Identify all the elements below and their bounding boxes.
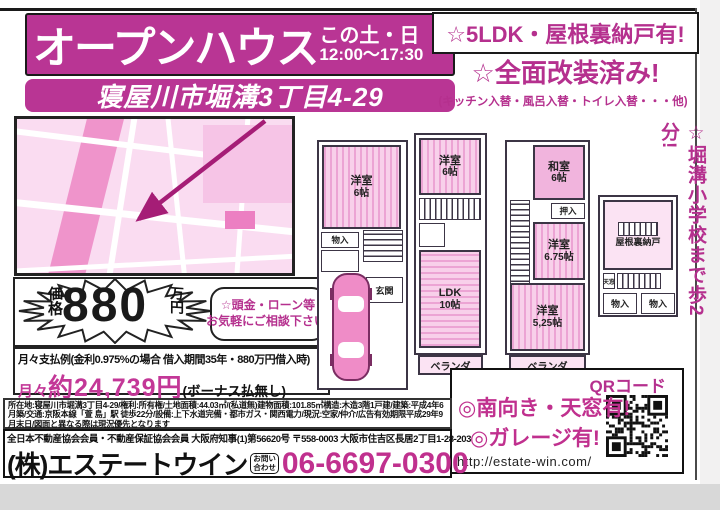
promo-garage: ◎ガレージ有!: [470, 422, 600, 452]
promo-qr-box: QRコード ◎南向き・天窓有! ◎ガレージ有! http://estate-wi…: [450, 368, 684, 474]
map-block: [203, 125, 295, 203]
closet-label: 物入: [641, 293, 675, 314]
feature-5ldk: ☆5LDK・屋根裏納戸有!: [432, 12, 699, 54]
website-url: http://estate-win.com/: [457, 454, 592, 469]
price-unit: 万円: [168, 285, 184, 314]
openhouse-banner: オープンハウス この土・日 12:00〜17:30: [25, 13, 455, 76]
closet-label: 物入: [603, 293, 637, 314]
room-west-6: 洋室 6帖: [322, 145, 401, 229]
license-line: 全日本不動産協会会員・不動産保証協会会員 大阪府知事(1)第56620号 〒55…: [7, 431, 448, 445]
phone-number: 06-6697-0300: [282, 447, 469, 481]
car-icon: [329, 270, 373, 384]
floorplan-attic: 屋根裏納戸 天窓 物入 物入: [598, 195, 678, 317]
toilet-unit: [419, 223, 445, 247]
flyer-page: オープンハウス この土・日 12:00〜17:30 寝屋川市堀溝3丁目4-29 …: [0, 0, 720, 510]
room-japanese-6: 和室 6帖: [533, 145, 585, 200]
price-amount: 880: [62, 278, 148, 333]
map-road: [164, 116, 192, 276]
payment-box: 月々支払例(金利0.975%の場合 借入期間35年・880万円借入時) 月々 約…: [13, 347, 330, 395]
openhouse-schedule: この土・日 12:00〜17:30: [319, 26, 423, 63]
map-block: [225, 211, 255, 229]
stairs-icon: [363, 230, 403, 262]
skylight-label: 天窓: [603, 273, 615, 289]
company-box: 全日本不動産協会会員・不動産保証協会会員 大阪府知事(1)第56620号 〒55…: [3, 429, 452, 478]
openhouse-title: オープンハウス: [33, 14, 317, 76]
payment-suffix: (ボーナス払無し): [182, 380, 286, 400]
company-name: (株)エステートウイン: [7, 445, 247, 482]
stairs-icon: [618, 222, 658, 236]
promo-south-facing: ◎南向き・天窓有!: [458, 392, 630, 422]
feature-renovated: ☆全面改装済み!: [438, 54, 693, 88]
closet-label: 物入: [321, 232, 359, 248]
floorplan-2f: 洋室 6帖 LDK 10帖: [414, 133, 487, 355]
loan-consult-line1: ☆頭金・ローン等: [221, 298, 315, 314]
contact-badge: お問い 合わせ: [250, 453, 279, 474]
oshiire-label: 押入: [551, 203, 585, 219]
payment-example: 月々支払例(金利0.975%の場合 借入期間35年・880万円借入時): [18, 351, 325, 367]
stairs-icon: [419, 198, 481, 220]
scanner-margin-bottom: [0, 484, 720, 510]
floorplan-1f: 洋室 6帖 物入 玄関: [317, 140, 408, 390]
loan-consult-bubble: ☆頭金・ローン等 お気軽にご相談下さい!: [210, 287, 326, 341]
feature-renovation-detail: (キッチン入替・風呂入替・トイレ入替・・・他): [432, 92, 694, 110]
ldk-room: LDK 10帖: [419, 250, 481, 348]
room-west-6b: 洋室 6帖: [419, 138, 481, 195]
bath-unit: [321, 250, 359, 272]
openhouse-time: 12:00〜17:30: [319, 46, 423, 63]
top-border-line: [0, 8, 697, 11]
room-west-675: 洋室 6.75帖: [533, 222, 585, 280]
location-map: [14, 116, 295, 276]
floorplan-3f: 和室 6帖 押入 洋室 6.75帖 洋室 5,25帖: [505, 140, 590, 355]
property-details-fineprint: 所在地:寝屋川市堀溝3丁目4-29/権利:所有権/土地面積:44.03㎡/(私道…: [3, 398, 452, 429]
attic-storage-room: 屋根裏納戸: [603, 200, 673, 270]
property-address-banner: 寝屋川市堀溝3丁目4-29: [25, 79, 455, 112]
stairs-icon: [617, 273, 661, 289]
loan-consult-line2: お気軽にご相談下さい!: [206, 314, 330, 330]
company-row: (株)エステートウイン お問い 合わせ 06-6697-0300: [7, 445, 448, 482]
openhouse-date: この土・日: [319, 26, 423, 46]
price-label: 価格: [44, 285, 62, 316]
room-west-525: 洋室 5,25帖: [510, 283, 585, 351]
